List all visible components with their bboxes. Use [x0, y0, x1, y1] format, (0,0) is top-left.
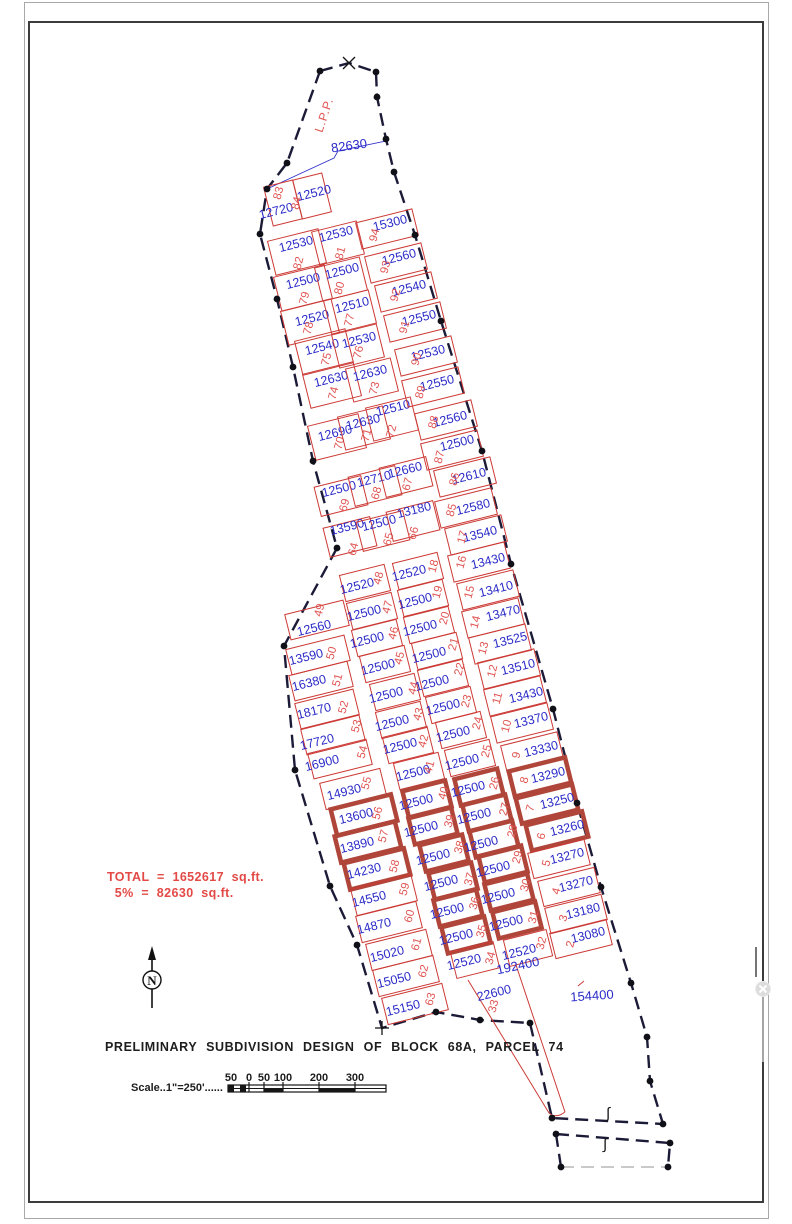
- survey-point: [327, 883, 334, 890]
- lot-number-7: 7: [524, 804, 537, 813]
- lot-number-76: 76: [352, 345, 367, 360]
- lot-area-55: 14930: [325, 781, 362, 803]
- lot-area-50: 13590: [287, 646, 324, 668]
- lot-number-67: 67: [401, 477, 416, 492]
- scale-tick-50: 50: [225, 1072, 237, 1084]
- lot-area-20: 12500: [401, 617, 438, 639]
- lot-area-15: 13410: [477, 578, 514, 600]
- scale-text: Scale..1"=250'......: [131, 1082, 223, 1094]
- lot-area-49: 12560: [295, 617, 332, 639]
- plus-survey-mark: [375, 1021, 389, 1035]
- lot-number-60: 60: [403, 909, 418, 924]
- lot-number-61: 61: [410, 937, 425, 952]
- survey-point: [647, 1078, 654, 1085]
- lot-number-51: 51: [331, 673, 346, 688]
- survey-point: [550, 706, 557, 713]
- lot-number-64: 64: [347, 541, 362, 557]
- scale-tick-300: 300: [346, 1072, 364, 1084]
- lot-area-81: 12530: [317, 223, 354, 245]
- lot-number-55: 55: [360, 776, 375, 791]
- lot-number-6: 6: [535, 832, 548, 841]
- lot-area-46: 12500: [348, 629, 385, 651]
- scale-tick-50: 50: [258, 1072, 270, 1084]
- survey-point: [549, 1115, 556, 1122]
- stream-mark-icon: ∫: [605, 1105, 612, 1122]
- lot-number-72: 72: [385, 424, 400, 439]
- lot-number-59: 59: [398, 882, 413, 897]
- lot-number-63: 63: [424, 992, 439, 1007]
- scale-tick-0: 0: [246, 1072, 252, 1084]
- lot-number-77: 77: [343, 313, 358, 328]
- lot-area-66: 13180: [395, 499, 432, 521]
- reserve-area-label: 82630: [330, 136, 368, 156]
- lot-number-56: 56: [371, 806, 386, 821]
- lot-number-54: 54: [356, 744, 371, 760]
- lot-area-53: 17720: [298, 731, 335, 753]
- lot-number-58: 58: [388, 859, 403, 874]
- lot-area-10: 13370: [512, 709, 549, 731]
- lot-area-12: 13510: [499, 656, 536, 678]
- survey-point: [412, 232, 419, 239]
- survey-point: [667, 1140, 674, 1147]
- lot-area-5: 13270: [548, 845, 585, 867]
- lot-number-21: 21: [447, 637, 462, 652]
- survey-point: [354, 942, 361, 949]
- plat-page: 82630 L.P.P. 127208312520841253082125007…: [0, 0, 792, 1224]
- lot-number-10: 10: [500, 719, 515, 734]
- lot-number-80: 80: [333, 281, 348, 296]
- lot-area-47: 12500: [345, 602, 382, 624]
- drawing-title: PRELIMINARY SUBDIVISION DESIGN OF BLOCK …: [105, 1040, 725, 1054]
- lot-area-82: 12530: [277, 233, 314, 255]
- lot-area-9: 13330: [522, 738, 559, 760]
- lot-area-24: 12500: [434, 723, 471, 745]
- lot-number-46: 46: [387, 626, 402, 641]
- lot-area-23: 12500: [424, 696, 461, 718]
- lot-number-62: 62: [417, 964, 432, 979]
- lot-area-83: 12720: [257, 200, 294, 222]
- survey-point: [373, 69, 380, 76]
- lot-number-83: 83: [272, 186, 287, 201]
- lot-area-61: 15020: [368, 943, 405, 965]
- lot-area-64: 13590: [328, 516, 365, 538]
- survey-point: [665, 1164, 672, 1171]
- survey-point: [527, 1020, 534, 1027]
- survey-point: [264, 186, 271, 193]
- lot-area-85: 12580: [454, 496, 491, 518]
- lot-area-52: 18170: [295, 700, 332, 722]
- lot-area-63: 15150: [384, 997, 421, 1019]
- lot-number-66: 66: [407, 526, 422, 541]
- lot-number-11: 11: [491, 691, 506, 706]
- lot-number-16: 16: [455, 555, 470, 570]
- boundary-tail: [556, 1134, 670, 1167]
- lot-number-74: 74: [327, 385, 342, 401]
- lot-number-57: 57: [377, 829, 392, 844]
- survey-point: [574, 800, 581, 807]
- scale-bar: 50050100200300: [225, 1072, 386, 1092]
- lot-area-25: 12500: [443, 751, 480, 773]
- north-letter: N: [147, 973, 157, 988]
- lot-number-24: 24: [471, 715, 486, 731]
- lot-number-45: 45: [393, 651, 408, 666]
- lot-area-51: 16380: [290, 672, 327, 694]
- survey-point: [292, 767, 299, 774]
- scale-tick-100: 100: [274, 1072, 292, 1084]
- parcel-label-154400: 154400: [570, 987, 614, 1005]
- total-line2: 5% = 82630 sq.ft.: [107, 886, 234, 900]
- survey-point: [290, 364, 297, 371]
- lot-area-65: 12500: [360, 512, 397, 534]
- lot-number-50: 50: [325, 646, 340, 661]
- survey-point: [558, 1164, 565, 1171]
- survey-point: [479, 448, 486, 455]
- survey-point: [477, 1017, 484, 1024]
- survey-point: [317, 68, 324, 75]
- total-area-note: TOTAL = 1652617 sq.ft. 5% = 82630 sq.ft.: [107, 869, 264, 901]
- survey-point: [274, 296, 281, 303]
- lot-number-75: 75: [320, 352, 335, 367]
- survey-point: [628, 980, 635, 987]
- lot-area-44: 12500: [367, 684, 404, 706]
- lot-number-69: 69: [338, 498, 353, 513]
- survey-point: [310, 458, 317, 465]
- lot-number-41: 41: [423, 760, 438, 775]
- lot-number-25: 25: [480, 744, 495, 759]
- lot-area-19: 12500: [396, 590, 433, 612]
- lot-area-62: 15050: [375, 969, 412, 991]
- lot-area-87: 12500: [438, 432, 475, 454]
- lot-area-11: 13430: [507, 684, 544, 706]
- survey-point: [660, 1121, 667, 1128]
- lot-number-19: 19: [431, 585, 446, 600]
- lot-number-53: 53: [350, 719, 365, 734]
- lpp-label: L.P.P.: [312, 96, 336, 134]
- survey-point: [438, 318, 445, 325]
- north-arrow: N: [143, 946, 161, 1008]
- lot-area-18: 12520: [390, 562, 427, 584]
- survey-point: [334, 545, 341, 552]
- lot-area-45: 12500: [359, 656, 396, 678]
- lot-area-60: 14870: [355, 915, 392, 937]
- lot-number-32: 32: [535, 936, 550, 951]
- lot-area-13: 13525: [491, 629, 528, 651]
- lot-number-65: 65: [382, 532, 397, 547]
- lot-area-54: 16900: [303, 752, 340, 774]
- large-parcel-labels: 192400154400: [495, 954, 614, 1005]
- lot-area-57: 13890: [338, 834, 375, 856]
- lot-number-14: 14: [469, 614, 484, 630]
- scale-tick-200: 200: [310, 1072, 328, 1084]
- lot-number-15: 15: [463, 585, 478, 600]
- lot-area-59: 14550: [350, 888, 387, 910]
- lot-number-13: 13: [477, 641, 492, 656]
- lot-grid: 1272083125208412530821250079125207812540…: [257, 173, 612, 1025]
- survey-point: [391, 169, 398, 176]
- lot-area-42: 12500: [381, 735, 418, 757]
- survey-point: [284, 160, 291, 167]
- lot-area-43: 12500: [373, 712, 410, 734]
- viewer-widget: [756, 947, 771, 1062]
- stream-marks: ∫∫: [602, 1105, 612, 1153]
- lot-area-80: 12500: [323, 260, 360, 282]
- survey-point: [281, 643, 288, 650]
- lot-area-16: 13430: [469, 550, 506, 572]
- survey-point: [374, 94, 381, 101]
- survey-point: [383, 136, 390, 143]
- survey-point: [508, 561, 515, 568]
- lot-number-9: 9: [510, 751, 523, 760]
- survey-point: [433, 1009, 440, 1016]
- lot-number-73: 73: [368, 381, 383, 396]
- lot-number-48: 48: [372, 571, 387, 586]
- survey-point: [257, 231, 264, 238]
- survey-point: [553, 1131, 560, 1138]
- lot-number-33: 33: [487, 999, 502, 1014]
- lot-area-48: 12520: [338, 575, 375, 597]
- total-line1: TOTAL = 1652617 sq.ft.: [107, 870, 264, 884]
- lot-number-12: 12: [486, 664, 501, 679]
- lot-number-22: 22: [453, 662, 468, 677]
- lot-number-52: 52: [337, 700, 352, 715]
- survey-point: [598, 884, 605, 891]
- lot-area-69: 12500: [320, 478, 357, 500]
- lot-number-68: 68: [370, 486, 385, 501]
- close-icon[interactable]: [756, 982, 771, 997]
- parcel-154400-tick: [578, 981, 584, 986]
- lot-area-21: 12500: [410, 644, 447, 666]
- lot-area-8: 13290: [529, 764, 566, 786]
